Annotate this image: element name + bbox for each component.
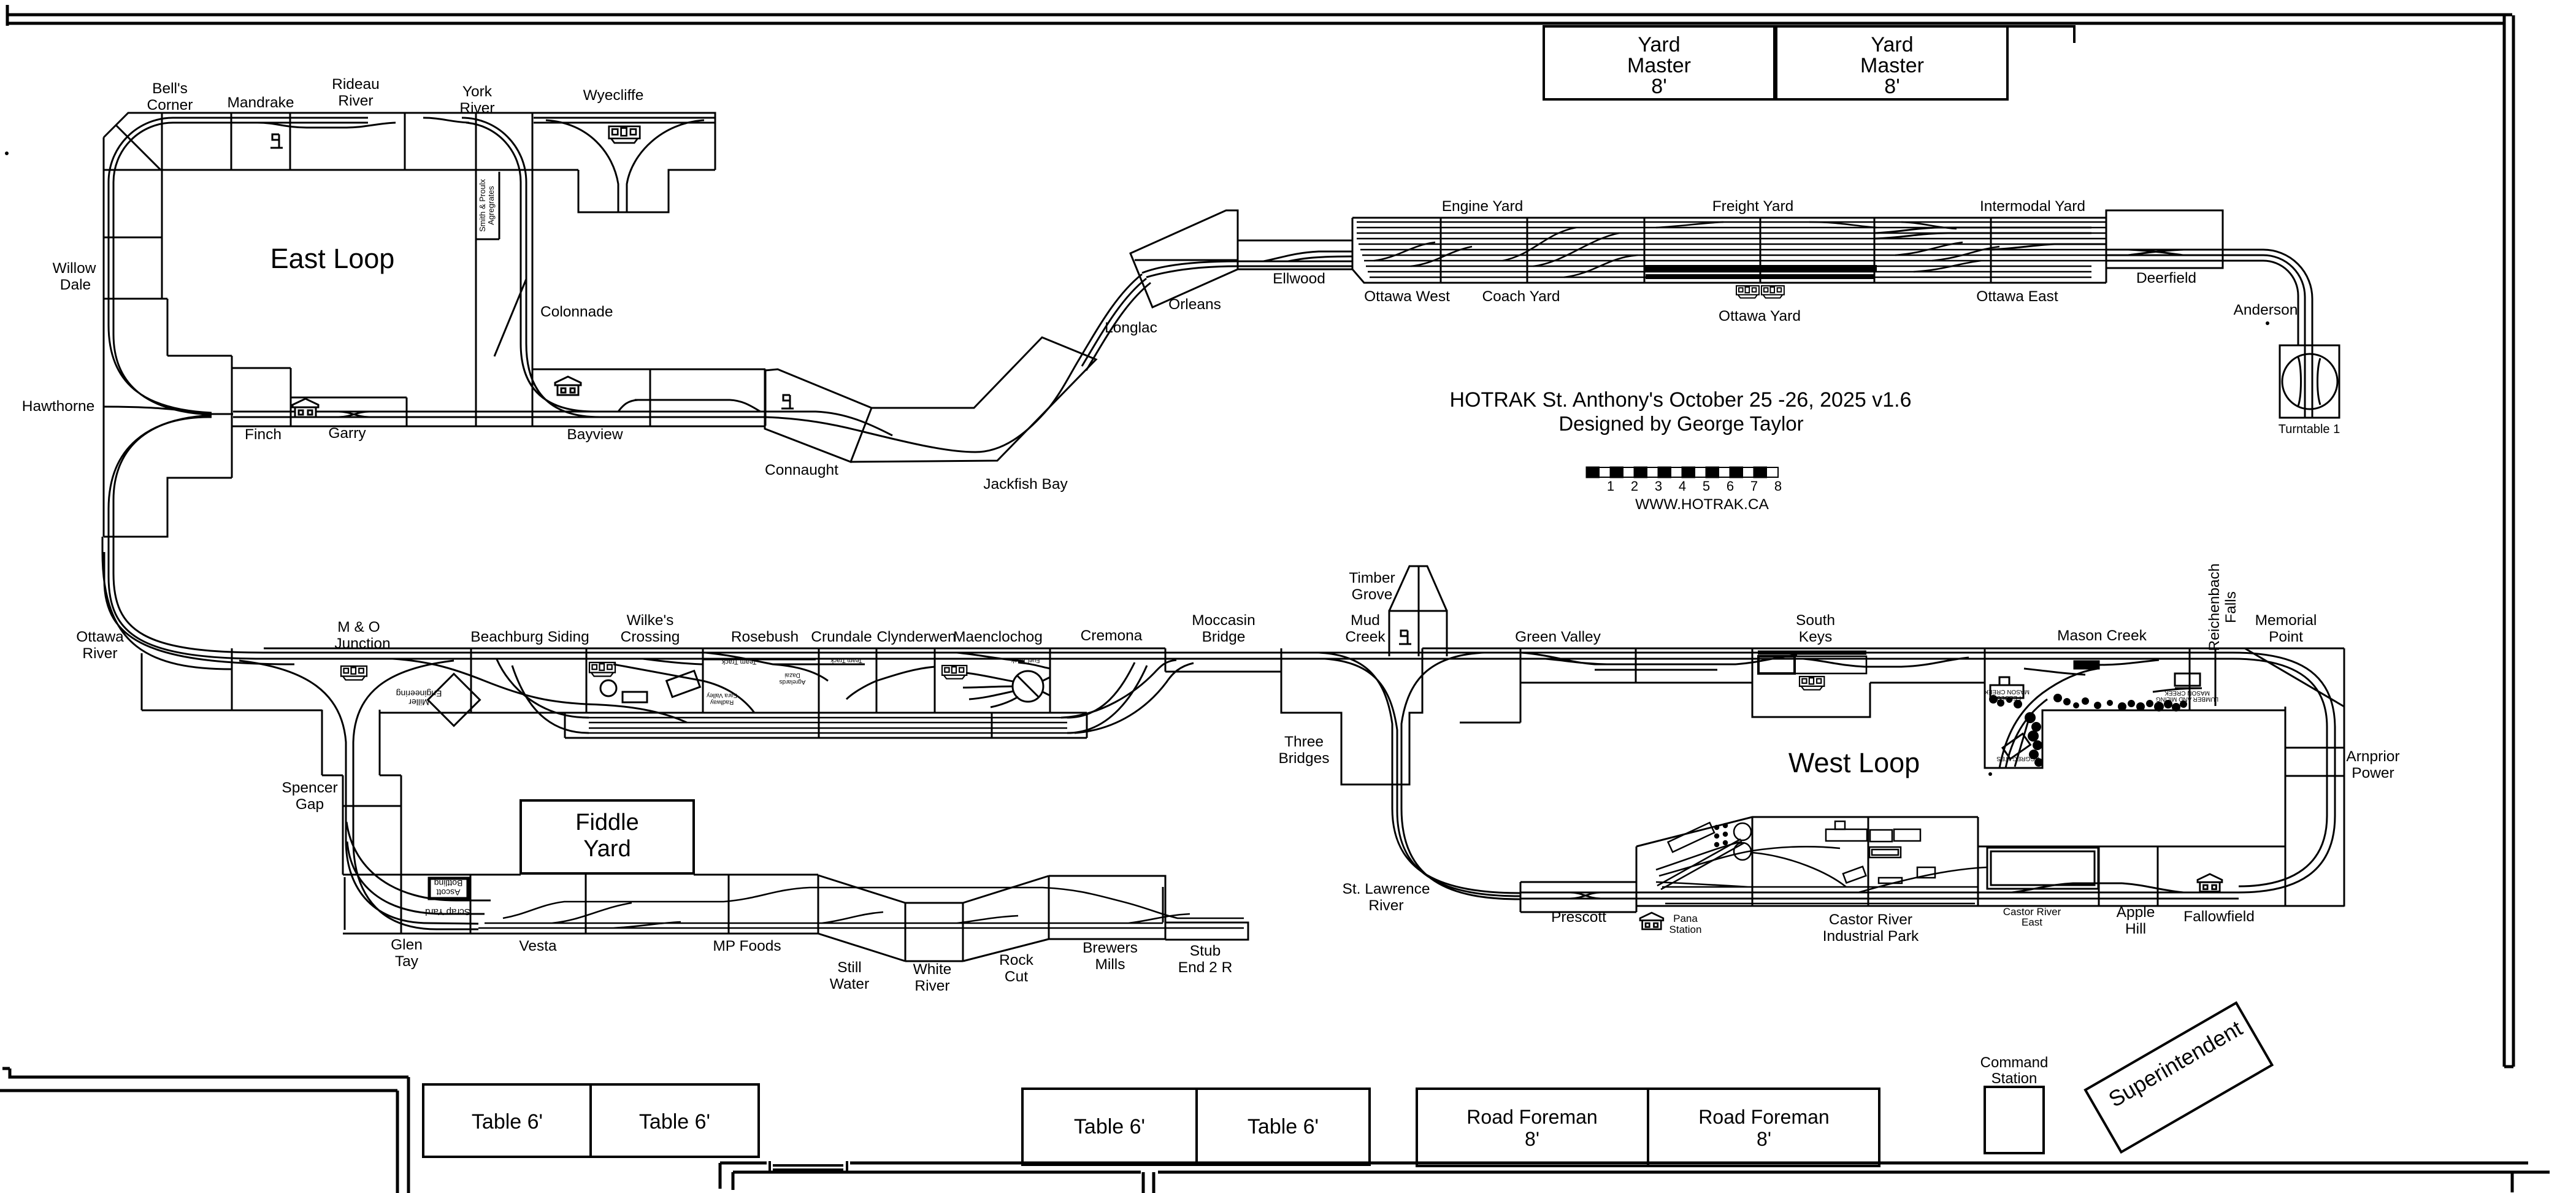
svg-text:East Loop: East Loop xyxy=(270,243,395,274)
svg-text:Team Track: Team Track xyxy=(830,657,862,664)
svg-text:FEEDLOT: FEEDLOT xyxy=(1993,694,2021,701)
svg-text:Stub: Stub xyxy=(1190,943,1221,959)
svg-text:Fuel Track: Fuel Track xyxy=(1011,657,1040,664)
svg-text:Fiddle: Fiddle xyxy=(575,810,639,835)
svg-text:Glen: Glen xyxy=(391,937,423,953)
svg-text:Orleans: Orleans xyxy=(1168,296,1221,313)
svg-text:Arnprior: Arnprior xyxy=(2346,748,2399,765)
svg-text:Master: Master xyxy=(1627,54,1691,77)
svg-text:Road Foreman: Road Foreman xyxy=(1698,1106,1829,1128)
svg-text:Bridges: Bridges xyxy=(1278,750,1329,767)
svg-text:Rock: Rock xyxy=(999,952,1034,969)
svg-text:Clynderwen: Clynderwen xyxy=(876,629,956,645)
svg-text:Ellwood: Ellwood xyxy=(1273,270,1325,287)
svg-text:5: 5 xyxy=(1703,478,1710,494)
svg-text:Longlac: Longlac xyxy=(1105,320,1157,336)
svg-text:8: 8 xyxy=(1774,478,1782,494)
svg-text:Maenclochog: Maenclochog xyxy=(953,629,1043,645)
svg-text:Mud: Mud xyxy=(1351,612,1380,629)
svg-text:Colonnade: Colonnade xyxy=(540,304,613,320)
svg-text:York: York xyxy=(462,83,493,100)
svg-text:River: River xyxy=(1368,897,1403,914)
svg-text:Spencer: Spencer xyxy=(282,780,337,796)
svg-text:Industrial Park: Industrial Park xyxy=(1823,928,1919,945)
svg-text:End 2 R: End 2 R xyxy=(1178,959,1233,976)
svg-text:Fara Valley: Fara Valley xyxy=(707,692,737,699)
svg-text:8': 8' xyxy=(1525,1128,1539,1150)
svg-text:River: River xyxy=(459,100,494,117)
svg-text:St. Lawrence: St. Lawrence xyxy=(1343,881,1430,897)
svg-text:Mills: Mills xyxy=(1095,956,1125,973)
svg-text:Reichenbach: Reichenbach xyxy=(2206,563,2223,651)
svg-text:Command: Command xyxy=(1980,1054,2049,1071)
svg-text:Junction: Junction xyxy=(334,635,390,652)
svg-text:River: River xyxy=(82,645,117,662)
svg-text:Smith & Proulx: Smith & Proulx xyxy=(478,179,487,232)
svg-text:3: 3 xyxy=(1655,478,1662,494)
svg-text:Anderson: Anderson xyxy=(2234,302,2298,318)
svg-text:Deerfield: Deerfield xyxy=(2136,270,2196,286)
svg-text:Bell's: Bell's xyxy=(152,80,188,97)
svg-text:Hill: Hill xyxy=(2125,921,2146,937)
svg-text:6: 6 xyxy=(1727,478,1734,494)
svg-text:Gap: Gap xyxy=(296,796,324,813)
svg-text:MASON CREEK: MASON CREEK xyxy=(1984,688,2030,695)
svg-text:Station: Station xyxy=(1669,924,1702,935)
svg-text:River: River xyxy=(914,978,949,994)
svg-text:Bayview: Bayview xyxy=(567,426,623,443)
svg-text:Crundale: Crundale xyxy=(811,629,872,645)
svg-text:Ottawa East: Ottawa East xyxy=(1976,288,2058,305)
svg-text:Mandrake: Mandrake xyxy=(228,94,294,111)
svg-text:Point: Point xyxy=(2269,629,2303,645)
svg-text:Ottawa Yard: Ottawa Yard xyxy=(1719,308,1801,324)
svg-text:East: East xyxy=(2022,916,2042,928)
svg-text:1: 1 xyxy=(1607,478,1614,494)
svg-text:Dale: Dale xyxy=(60,277,91,293)
svg-text:Prescott: Prescott xyxy=(1551,909,1606,926)
svg-text:Tay: Tay xyxy=(395,953,419,970)
svg-text:Table 6': Table 6' xyxy=(639,1110,710,1134)
svg-text:Yard: Yard xyxy=(1638,33,1680,56)
svg-text:8': 8' xyxy=(1651,75,1666,98)
svg-text:White: White xyxy=(913,961,952,978)
svg-text:Coach Yard: Coach Yard xyxy=(1482,288,1560,305)
svg-text:River: River xyxy=(338,93,373,109)
svg-text:Willow: Willow xyxy=(53,260,96,277)
svg-text:Ottawa West: Ottawa West xyxy=(1364,288,1450,305)
svg-text:MASON CREEK: MASON CREEK xyxy=(2164,689,2210,696)
svg-text:7: 7 xyxy=(1750,478,1758,494)
svg-text:Turntable 1: Turntable 1 xyxy=(2279,423,2340,436)
svg-text:8': 8' xyxy=(1757,1128,1771,1150)
svg-text:Brewers: Brewers xyxy=(1083,940,1138,956)
svg-text:Finch: Finch xyxy=(245,426,282,443)
svg-text:Engine Yard: Engine Yard xyxy=(1442,198,1524,215)
svg-text:AGGREGATES: AGGREGATES xyxy=(1996,755,2039,762)
svg-text:Cremona: Cremona xyxy=(1081,627,1143,644)
svg-text:Hawthorne: Hawthorne xyxy=(22,398,94,415)
svg-text:4: 4 xyxy=(1679,478,1686,494)
svg-text:Team Track: Team Track xyxy=(721,658,756,666)
svg-text:Moccasin: Moccasin xyxy=(1192,612,1255,629)
svg-text:Mason Creek: Mason Creek xyxy=(2057,627,2147,644)
svg-text:Freight Yard: Freight Yard xyxy=(1712,198,1794,215)
svg-text:Three: Three xyxy=(1284,734,1324,750)
svg-text:Water: Water xyxy=(830,976,869,992)
svg-text:West Loop: West Loop xyxy=(1788,747,1920,778)
svg-text:Scrap Yard: Scrap Yard xyxy=(425,907,470,917)
svg-text:Dazai: Dazai xyxy=(784,672,800,678)
svg-text:Agrelards: Agrelards xyxy=(780,678,806,685)
svg-text:Timber: Timber xyxy=(1349,570,1395,586)
svg-text:Apple: Apple xyxy=(2117,904,2155,921)
svg-text:HOTRAK St. Anthony's October 2: HOTRAK St. Anthony's October 25 -26, 202… xyxy=(1450,388,1912,412)
svg-text:Cut: Cut xyxy=(1005,969,1028,985)
svg-text:Table 6': Table 6' xyxy=(1248,1115,1319,1138)
svg-text:Rideau: Rideau xyxy=(332,76,380,93)
svg-text:Keys: Keys xyxy=(1799,629,1832,645)
svg-text:South: South xyxy=(1796,612,1835,629)
svg-text:Bridge: Bridge xyxy=(1202,629,1246,645)
svg-text:Power: Power xyxy=(2352,765,2394,781)
svg-text:2: 2 xyxy=(1631,478,1638,494)
svg-text:Green Valley: Green Valley xyxy=(1515,629,1601,645)
svg-text:Intermodal Yard: Intermodal Yard xyxy=(1980,198,2085,215)
svg-text:8': 8' xyxy=(1884,75,1899,98)
svg-text:Station: Station xyxy=(1991,1070,2037,1087)
svg-text:Castor River: Castor River xyxy=(1829,911,1912,928)
svg-text:Wyecliffe: Wyecliffe xyxy=(583,87,644,104)
svg-text:Master: Master xyxy=(1860,54,1924,77)
svg-text:M & O: M & O xyxy=(337,619,380,635)
svg-text:Ottawa: Ottawa xyxy=(76,629,124,645)
svg-text:Pana: Pana xyxy=(1673,913,1698,924)
svg-text:Yard: Yard xyxy=(583,836,631,862)
svg-text:Yard: Yard xyxy=(1871,33,1913,56)
svg-text:Table 6': Table 6' xyxy=(472,1110,543,1134)
svg-text:Corner: Corner xyxy=(147,97,193,113)
svg-text:Agregrates: Agregrates xyxy=(486,186,496,225)
svg-text:Garry: Garry xyxy=(328,425,366,442)
svg-text:Crossing: Crossing xyxy=(621,629,680,645)
svg-text:Radlway: Radlway xyxy=(710,699,734,705)
svg-text:Table 6': Table 6' xyxy=(1074,1115,1145,1138)
svg-text:Rosebush: Rosebush xyxy=(731,629,799,645)
svg-text:Still: Still xyxy=(837,959,861,976)
svg-text:Designed by George Taylor: Designed by George Taylor xyxy=(1558,412,1803,435)
svg-text:Creek: Creek xyxy=(1345,629,1386,645)
svg-text:Road Foreman: Road Foreman xyxy=(1466,1106,1597,1128)
svg-text:Jackfish Bay: Jackfish Bay xyxy=(983,476,1068,493)
svg-text:Falls: Falls xyxy=(2223,591,2239,623)
svg-text:LUMBER AND MILING: LUMBER AND MILING xyxy=(2156,696,2218,702)
svg-text:Wilke's: Wilke's xyxy=(627,612,674,629)
svg-text:Bottling: Bottling xyxy=(434,878,463,888)
svg-text:MP Foods: MP Foods xyxy=(713,938,781,954)
svg-text:WWW.HOTRAK.CA: WWW.HOTRAK.CA xyxy=(1635,496,1769,513)
svg-text:Vesta: Vesta xyxy=(519,938,557,954)
svg-text:Ascott: Ascott xyxy=(436,888,460,897)
svg-text:Grove: Grove xyxy=(1352,586,1393,603)
svg-text:Memorial: Memorial xyxy=(2255,612,2317,629)
svg-text:Beachburg Siding: Beachburg Siding xyxy=(470,629,589,645)
svg-text:Engineering: Engineering xyxy=(396,689,442,699)
svg-text:Fallowfield: Fallowfield xyxy=(2183,908,2255,925)
svg-text:Connaught: Connaught xyxy=(765,462,838,478)
